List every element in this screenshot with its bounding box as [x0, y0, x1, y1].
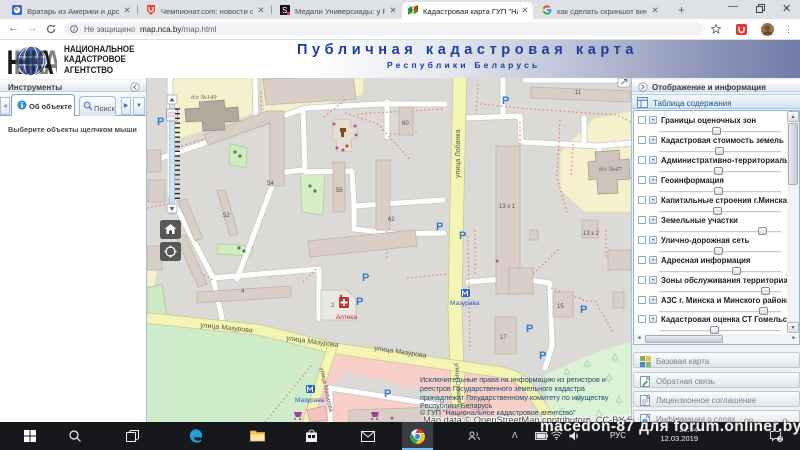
svg-text:P: P	[580, 304, 587, 316]
svg-text:д/с №47: д/с №47	[599, 166, 622, 173]
svg-text:62: 62	[388, 217, 395, 223]
svg-text:S: S	[282, 6, 287, 15]
svg-text:реестров Государственного земе: реестров Государственного земельного кад…	[420, 384, 585, 393]
svg-text:13 к 1: 13 к 1	[499, 204, 516, 210]
svg-text:13 к 2: 13 к 2	[583, 231, 600, 237]
svg-text:52: 52	[223, 213, 230, 219]
svg-text:улица Лобанка: улица Лобанка	[454, 130, 462, 178]
svg-text:54: 54	[267, 181, 274, 187]
svg-text:P: P	[539, 350, 546, 362]
svg-text:11: 11	[575, 90, 582, 96]
svg-text:НКА: НКА	[14, 44, 57, 78]
svg-text:Мазурава: Мазурава	[450, 300, 480, 307]
svg-text:P: P	[459, 230, 466, 242]
svg-text:P: P	[436, 221, 443, 233]
svg-text:Аптека: Аптека	[336, 314, 357, 321]
svg-text:Мазурава: Мазурава	[295, 397, 325, 404]
svg-text:17: 17	[500, 335, 507, 341]
svg-text:56: 56	[336, 188, 343, 194]
svg-text:д/с №149: д/с №149	[191, 94, 217, 101]
svg-text:P: P	[526, 323, 533, 335]
svg-text:P: P	[384, 388, 391, 400]
svg-text:15: 15	[557, 304, 564, 310]
svg-text:2: 2	[779, 437, 782, 442]
svg-text:P: P	[157, 116, 164, 128]
svg-text:P: P	[356, 296, 363, 308]
svg-text:P: P	[362, 272, 369, 284]
svg-text:60: 60	[402, 121, 409, 127]
svg-text:Исключительные права на информ: Исключительные права на информацию из ре…	[420, 375, 606, 384]
svg-text:P: P	[502, 95, 509, 107]
